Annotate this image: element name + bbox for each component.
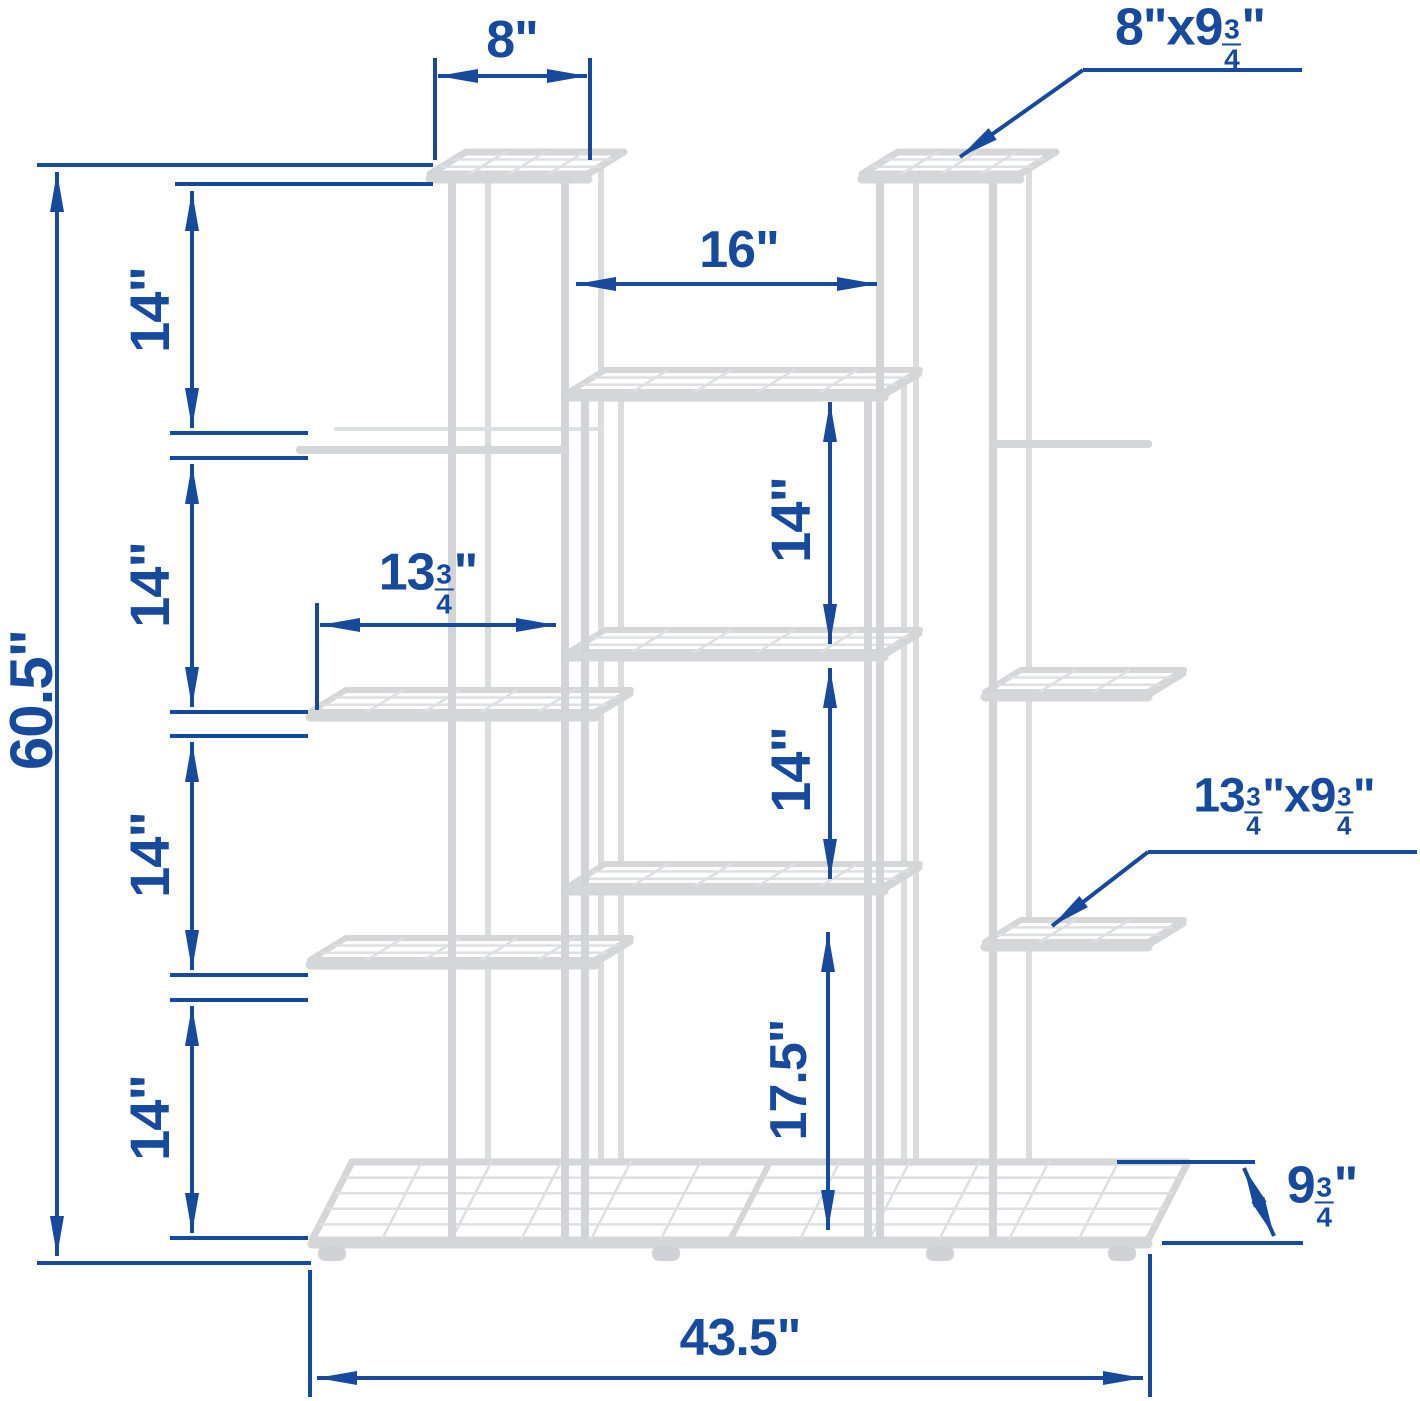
dim-label-middle-gap: 16" (699, 224, 779, 276)
dim-label-top-shelf-size: 8"x934" (1115, 1, 1265, 74)
fraction: 34 (1315, 1173, 1334, 1232)
dimension-diagram: 8" 8"x934" 16" 60.5" 14" 14" 14" 14" 133… (0, 0, 1420, 1401)
fraction: 34 (1335, 785, 1353, 840)
dim-text: 14" (759, 477, 822, 563)
dim-text: " (1334, 1156, 1358, 1214)
dim-text: 14" (118, 542, 181, 628)
dim-text: 14" (759, 727, 822, 813)
dim-text: 14" (118, 812, 181, 898)
dim-side-shelf-leader (1052, 852, 1417, 926)
dim-label-tier-2: 14" (122, 542, 178, 628)
dim-top-shelf-leader (960, 70, 1302, 157)
plant-stand-drawing (300, 152, 1188, 1261)
dim-label-top-width: 8" (486, 14, 538, 66)
dim-text: 16" (699, 221, 779, 279)
dim-label-total-height: 60.5" (2, 630, 62, 770)
dim-text: " (1241, 0, 1265, 56)
plant-stand-diagram-canvas (0, 0, 1420, 1401)
dim-text: " (454, 543, 478, 601)
dim-label-base-depth: 934" (1287, 1159, 1358, 1232)
dim-label-tier-1: 14" (122, 267, 178, 353)
dim-label-mid-shelf-width: 1334" (379, 546, 477, 619)
dim-text: 9 (1287, 1156, 1315, 1214)
dim-text: " (1353, 769, 1375, 822)
dim-text: 43.5" (680, 1309, 801, 1367)
dim-text: 13 (379, 543, 435, 601)
dim-text: "x9 (1262, 769, 1335, 822)
dim-label-tier-4: 14" (122, 1075, 178, 1161)
dim-label-side-shelf-size: 1334"x934" (1193, 772, 1374, 839)
dim-text: 60.5" (0, 630, 65, 770)
fraction: 34 (1245, 785, 1263, 840)
dim-text: 8"x9 (1115, 0, 1222, 56)
dim-label-base-width: 43.5" (680, 1312, 801, 1364)
dim-label-middle-gap-2: 14" (763, 727, 819, 813)
dim-text: 14" (118, 1075, 181, 1161)
dim-text: 13 (1193, 769, 1244, 822)
fraction: 34 (1222, 15, 1241, 74)
dim-text: 17.5" (760, 1020, 818, 1141)
dim-text: 14" (118, 267, 181, 353)
dim-label-bottom-gap: 17.5" (763, 1020, 815, 1141)
dim-text: 8" (486, 11, 538, 69)
dim-label-tier-3: 14" (122, 812, 178, 898)
fraction: 34 (435, 560, 454, 619)
dim-label-middle-gap-1: 14" (763, 477, 819, 563)
dim-top-width (435, 58, 590, 160)
